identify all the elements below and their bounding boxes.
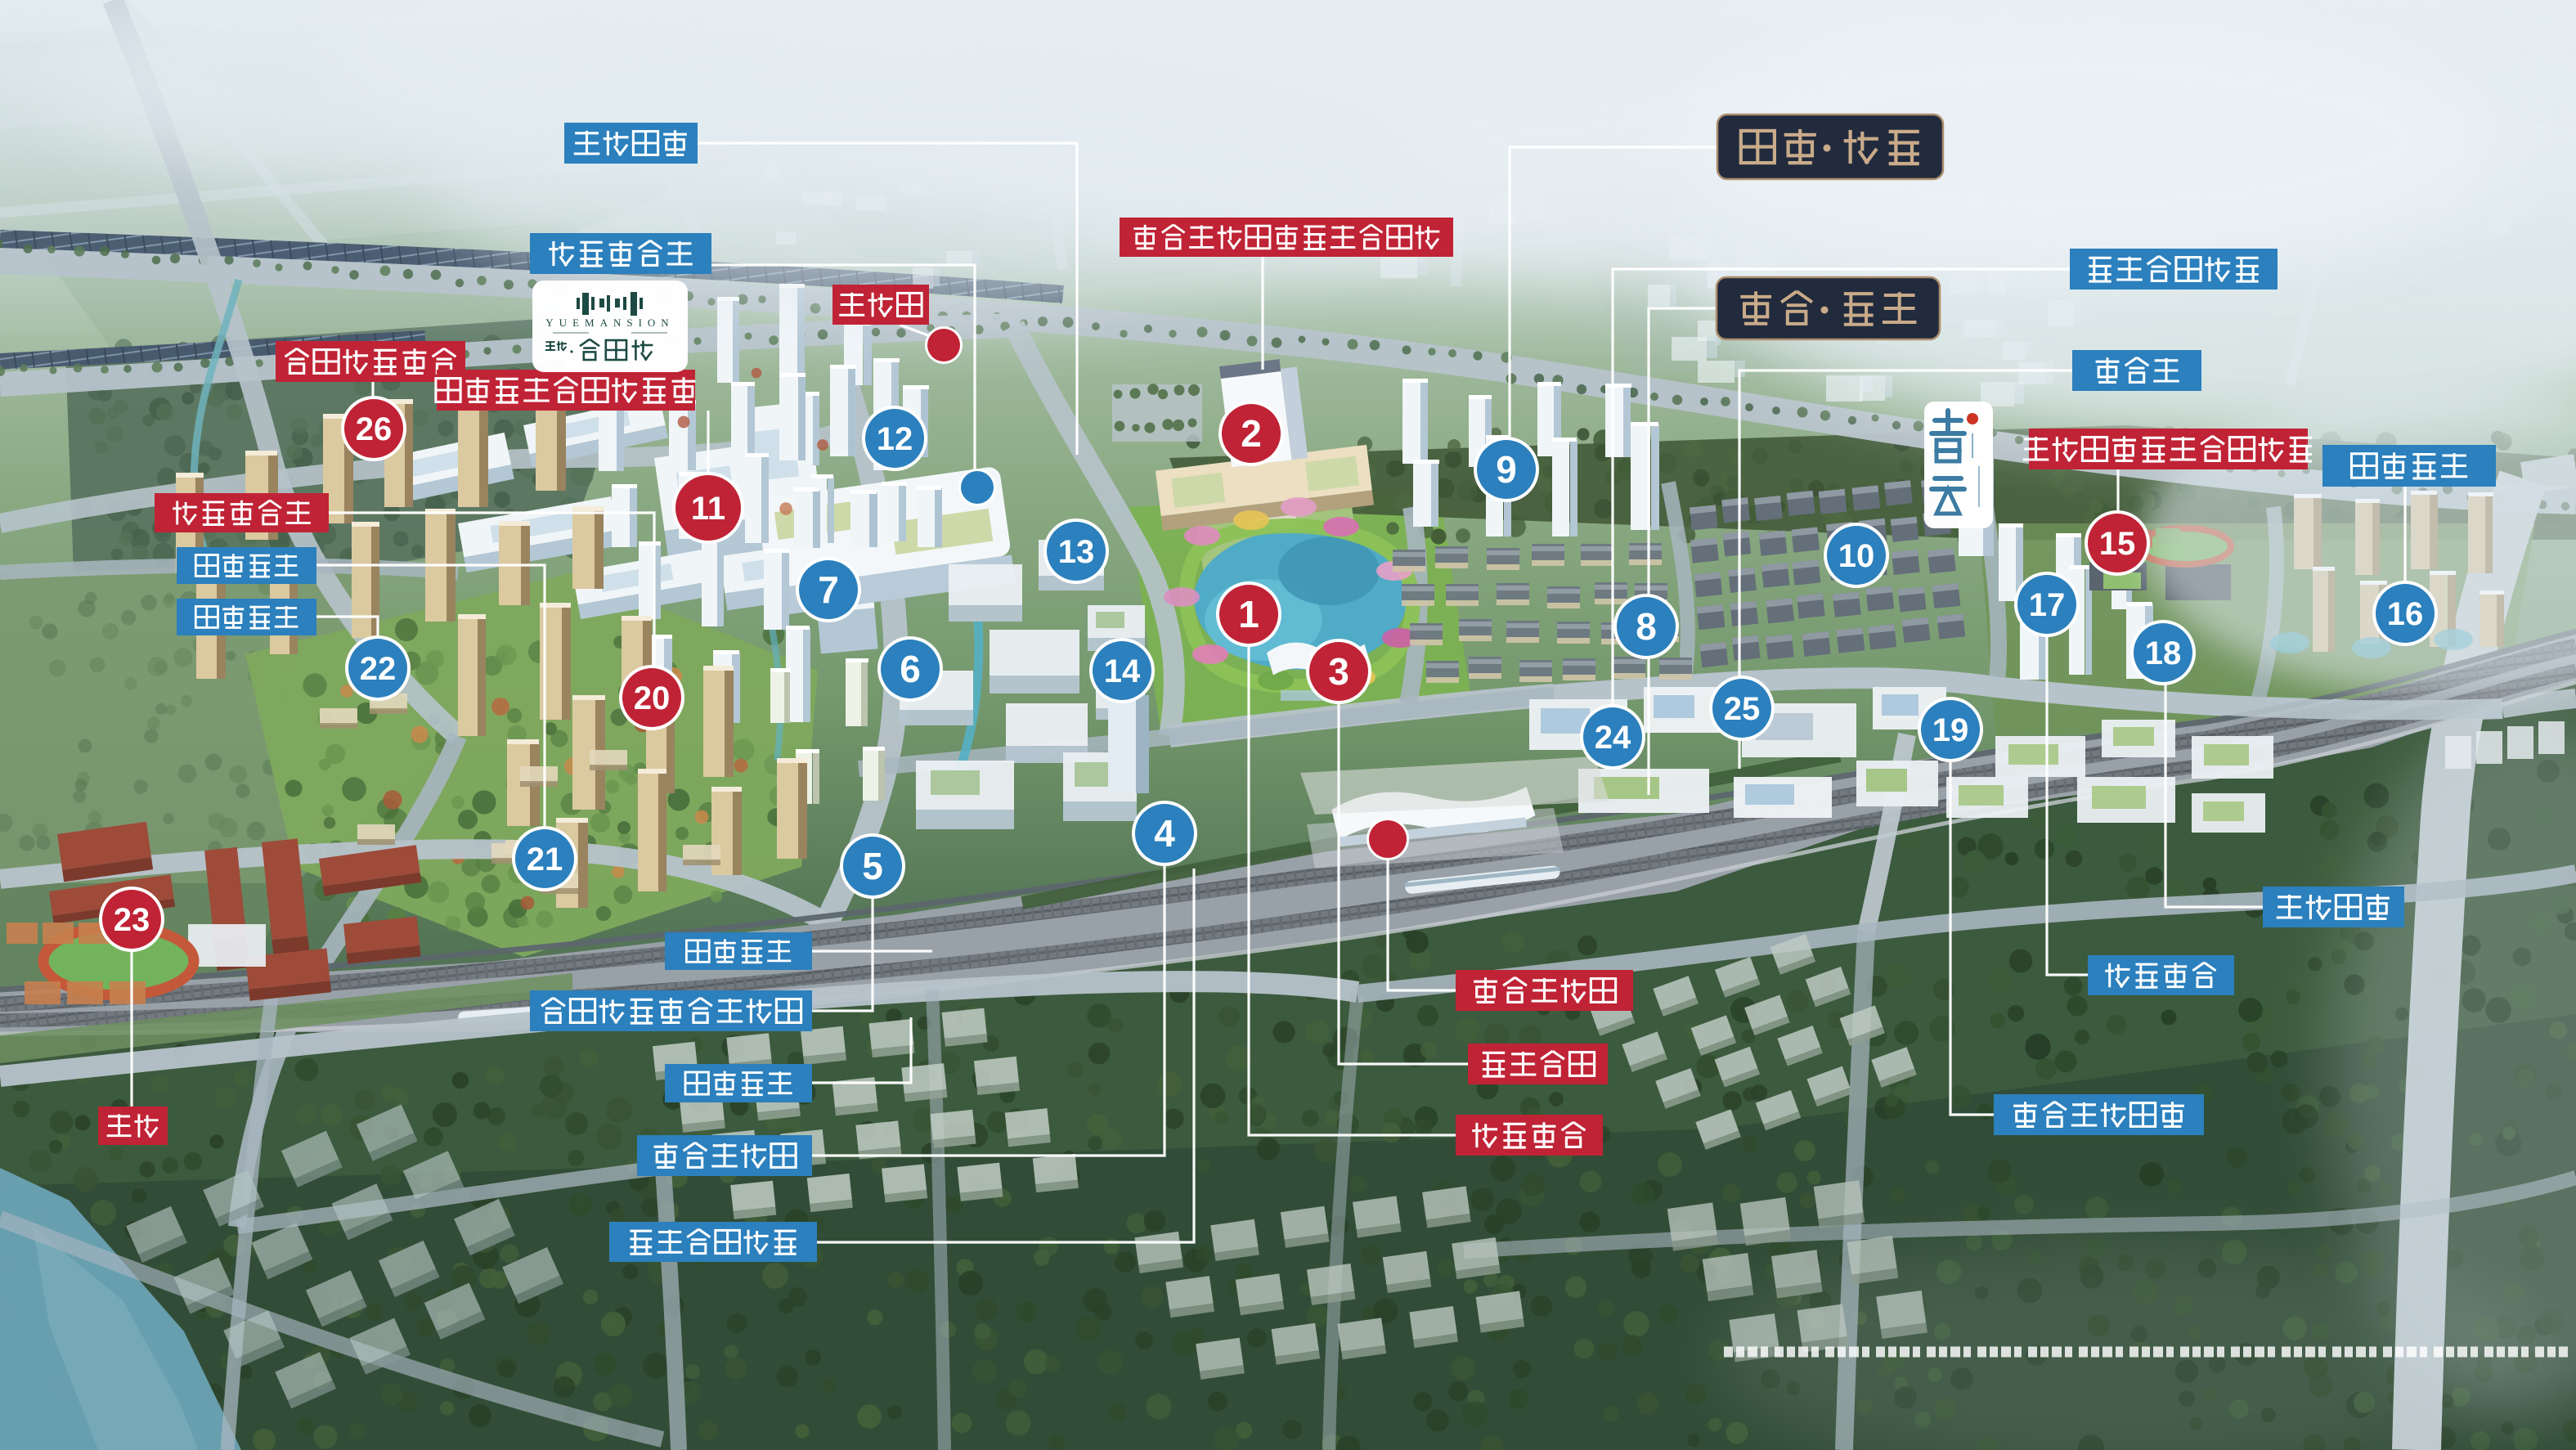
svg-text:11: 11: [691, 491, 725, 527]
svg-text:19: 19: [1932, 712, 1969, 748]
svg-text:17: 17: [2029, 587, 2066, 623]
svg-text:YUEMANSION: YUEMANSION: [545, 316, 674, 329]
svg-text:4: 4: [1154, 812, 1175, 855]
svg-text:2: 2: [1241, 412, 1262, 455]
svg-text:10: 10: [1838, 538, 1875, 574]
svg-text:12: 12: [877, 421, 913, 457]
svg-text:26: 26: [356, 411, 393, 447]
svg-text:14: 14: [1104, 653, 1141, 689]
svg-text:23: 23: [114, 902, 150, 938]
svg-text:21: 21: [527, 842, 563, 878]
svg-text:20: 20: [634, 680, 671, 716]
svg-text:1: 1: [1238, 593, 1259, 635]
svg-text:16: 16: [2387, 596, 2424, 632]
svg-text:7: 7: [818, 568, 839, 611]
svg-text:3: 3: [1328, 650, 1349, 693]
svg-text:18: 18: [2145, 635, 2182, 671]
svg-text:8: 8: [1636, 605, 1657, 648]
svg-text:25: 25: [1724, 691, 1761, 727]
svg-text:24: 24: [1595, 720, 1631, 756]
svg-text:13: 13: [1058, 534, 1095, 570]
svg-text:9: 9: [1496, 448, 1517, 491]
svg-text:6: 6: [900, 648, 921, 690]
svg-text:15: 15: [2099, 526, 2136, 562]
svg-text:5: 5: [862, 845, 883, 887]
svg-text:22: 22: [360, 651, 397, 687]
